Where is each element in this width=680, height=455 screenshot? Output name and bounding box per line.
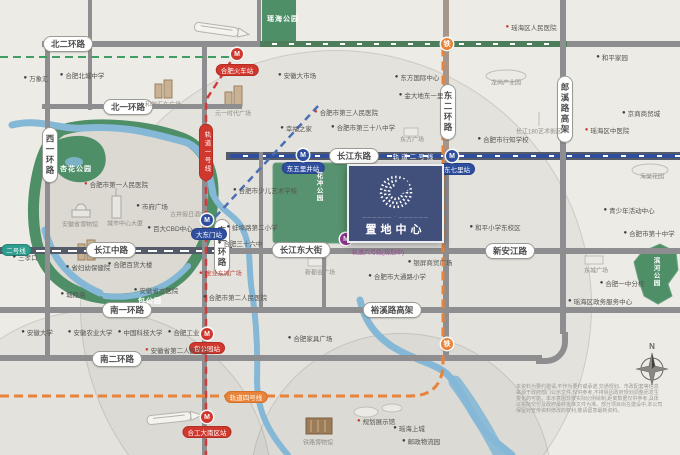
poi-label: ●规划展示馆 [357, 416, 395, 426]
poi-dot-icon: ● [226, 224, 230, 230]
poi-dot-icon: ● [233, 187, 237, 193]
poi-text: 包公园 [138, 296, 162, 306]
poi-text: 规划展示馆 [363, 416, 396, 426]
poi-text: 京商商贸城 [628, 108, 661, 118]
poi-dot-icon: ● [623, 230, 627, 236]
poi-text: 铁路博物馆 [303, 438, 333, 447]
poi-text: 合肥市少儿艺术学校 [239, 185, 298, 195]
poi-dot-icon: ● [108, 261, 112, 267]
poi-text: 杏花公园 [60, 164, 92, 174]
metro-station-icon[interactable]: M [446, 150, 458, 162]
poi-label: ●瑶海区中医院 [585, 125, 630, 135]
road-label: 新安江路 [485, 243, 535, 259]
poi-label: 安徽省博物馆 [62, 220, 98, 229]
poi-label: 海棠花园 [640, 172, 664, 181]
poi-label: ●合肥市第二人民医院 [203, 292, 267, 302]
poi-dot-icon: ● [147, 225, 151, 231]
poi-dot-icon: ● [600, 280, 604, 286]
poi-dot-icon: ● [12, 254, 16, 260]
poi-label: 新都会广场 [305, 268, 335, 277]
poi-text: 合肥一中分校 [605, 278, 644, 288]
compass-north-label: N [634, 342, 670, 351]
poi-text: 三孝口 [18, 252, 38, 262]
poi-text: 蚌埠路第二小学 [232, 222, 278, 232]
poi-text: 东方广场 [400, 135, 424, 144]
metro-station-icon[interactable]: M [201, 411, 213, 423]
metro-line-label: 轨道六号线(规划中) [352, 248, 404, 257]
poi-label: ●安徽省立医院 [134, 285, 179, 295]
poi-text: 合肥家具广场 [293, 333, 332, 343]
poi-text: 合肥市第十中学 [629, 228, 675, 238]
poi-label: 铁路博物馆 [303, 438, 333, 447]
poi-text: 城市中心大厦 [107, 219, 143, 228]
poi-dot-icon: ● [168, 329, 172, 335]
poi-dot-icon: ● [393, 425, 397, 431]
poi-dot-icon: ● [60, 291, 64, 297]
poi-text: 和平小学东校区 [475, 222, 521, 232]
poi-label: 东方广场 [400, 135, 424, 144]
poi-label: ●和平小学东校区 [469, 222, 520, 232]
poi-dot-icon: ● [118, 329, 122, 335]
railway-station-icon[interactable]: 铁 [441, 38, 453, 50]
poi-label: ●银屏商贸广场 [408, 257, 453, 267]
poi-text: 和地汇东广场 [145, 100, 181, 109]
poi-text: 安徽省博物馆 [62, 220, 98, 229]
poi-label: 东城广场 [584, 266, 608, 275]
compass-rose-icon [634, 351, 670, 387]
poi-text: 安徽大市场 [284, 70, 317, 80]
poi-text: 合肥市第三人民医院 [320, 107, 379, 117]
poi-label: ●合肥市第十中学 [623, 228, 674, 238]
road-label: 北二环路 [43, 36, 93, 52]
poi-dot-icon: ● [622, 110, 626, 116]
poi-text: 瑶海区政务服务中心 [574, 296, 633, 306]
poi-label: ★宝业东城广场 [198, 269, 241, 278]
metro-station-icon[interactable]: M [231, 48, 243, 60]
poi-label: ●合肥市第一人民医院 [84, 179, 148, 189]
poi-label: ●合肥市大通路小学 [368, 271, 426, 281]
poi-text: 合肥市大通路小学 [374, 271, 426, 281]
project-name: 置地中心 [366, 221, 426, 237]
poi-text: 省妇幼保健院 [71, 262, 110, 272]
poi-label: 滨河公园 [650, 257, 660, 287]
metro-station-icon[interactable]: M [201, 328, 213, 340]
poi-label: 包公园 [138, 296, 162, 306]
project-block[interactable]: —————— · —————— 置地中心 [347, 164, 444, 243]
poi-dot-icon: ● [23, 75, 27, 81]
poi-label: 城市中心大厦 [107, 219, 143, 228]
poi-dot-icon: ● [280, 125, 284, 131]
station-name-label: 合肥火车站 [216, 64, 259, 76]
poi-label: ●京商商贸城 [622, 108, 660, 118]
poi-label: ●三孝口 [12, 252, 37, 262]
poi-text: 安徽省第二人民医院 [151, 345, 210, 355]
poi-dot-icon: ● [395, 74, 399, 80]
poi-dot-icon: ● [314, 109, 318, 115]
poi-text: 青少年活动中心 [609, 205, 655, 215]
road-label: 裕溪路高架 [363, 302, 422, 318]
poi-text: 瑶海上城 [399, 423, 425, 433]
poi-label: ●邮政物流园 [402, 436, 440, 446]
poi-text: 合肥百货大楼 [113, 259, 152, 269]
poi-label: 花冲公园 [313, 172, 323, 202]
poi-text: 龙岗产业园 [491, 78, 521, 87]
poi-text: 万象汇 [29, 73, 49, 83]
poi-text: 瑶海公园 [267, 14, 299, 24]
poi-label: 龙岗产业园 [491, 78, 521, 87]
metro-station-icon[interactable]: M [297, 149, 309, 161]
poi-text: 市府广场 [142, 201, 168, 211]
poi-dot-icon: ● [603, 207, 607, 213]
poi-label: ●东方国际中心 [395, 72, 440, 82]
poi-dot-icon: ● [21, 329, 25, 335]
railway-station-icon[interactable]: 铁 [441, 338, 453, 350]
poi-label: 瑶海公园 [267, 14, 299, 24]
poi-label: ●安徽农业大学 [68, 327, 113, 337]
poi-text: 合肥市第三十八中学 [337, 122, 396, 132]
poi-dot-icon: ● [585, 127, 589, 133]
poi-dot-icon: ● [568, 298, 572, 304]
poi-label: ●合肥百货大楼 [108, 259, 153, 269]
poi-dot-icon: ● [596, 54, 600, 60]
poi-label: ●瑶海上城 [393, 423, 425, 433]
poi-text: 海棠花园 [640, 172, 664, 181]
poi-label: ●蚌埠路第二小学 [226, 222, 277, 232]
poi-label: ●城隍庙 [60, 289, 85, 299]
poi-label: ●万象汇 [23, 73, 48, 83]
poi-text: 邮政物流园 [408, 436, 441, 446]
poi-text: 金大地东一里 [404, 90, 443, 100]
poi-label: ●合肥家具广场 [288, 333, 333, 343]
poi-label: ●青少年活动中心 [603, 205, 654, 215]
poi-dot-icon: ● [357, 418, 361, 424]
poi-text: 合肥市行知学校 [483, 134, 529, 144]
poi-label: ●合肥市第三人民医院 [314, 107, 378, 117]
poi-text: 中国科技大学 [123, 327, 162, 337]
poi-text: 东城广场 [584, 266, 608, 275]
poi-label: ●安徽大市场 [278, 70, 316, 80]
poi-label: ●中国科技大学 [118, 327, 163, 337]
metro-station-icon[interactable]: M [201, 214, 213, 226]
poi-label: ●合肥市行知学校 [477, 134, 528, 144]
road-label: 长江东大街 [272, 242, 331, 258]
poi-dot-icon: ● [368, 273, 372, 279]
poi-label: ●安徽大学 [21, 327, 53, 337]
disclaimer-line: 保留对宣传资料修改的权利,敬请留意最新资料。 [516, 408, 674, 414]
road-label: 西一环路 [42, 127, 58, 183]
poi-text: 合肥市第一人民医院 [90, 179, 149, 189]
poi-dot-icon: ● [402, 438, 406, 444]
poi-label: ●金大地东一里 [399, 90, 444, 100]
poi-text: 花冲公园 [313, 172, 323, 202]
poi-label: ●瑶海区人民医院 [505, 22, 556, 32]
poi-label: ●和平家园 [596, 52, 628, 62]
poi-label: ●合肥一中分校 [600, 278, 645, 288]
poi-text: 和平家园 [602, 52, 628, 62]
poi-text: 安徽农业大学 [73, 327, 112, 337]
metro-line-label: 轨道四号线 [225, 391, 268, 403]
poi-dot-icon: ● [60, 72, 64, 78]
poi-label: ●合肥市少儿艺术学校 [233, 185, 297, 195]
poi-dot-icon: ● [505, 24, 509, 30]
poi-text: 合肥市第二人民医院 [209, 292, 268, 302]
poi-dot-icon: ● [408, 259, 412, 265]
poi-label: 元一时代广场 [215, 109, 251, 118]
poi-text: 城隍庙 [66, 289, 86, 299]
poi-label: ●合肥北城中学 [60, 70, 105, 80]
project-spiral-logo [375, 171, 417, 213]
poi-label: 和地汇东广场 [145, 100, 181, 109]
poi-dot-icon: ● [134, 287, 138, 293]
poi-dot-icon: ● [203, 294, 207, 300]
poi-text: 元一时代广场 [215, 109, 251, 118]
poi-text: 合肥北城中学 [65, 70, 104, 80]
poi-text: 宝业东城广场 [206, 269, 242, 278]
station-name-label: 东七里站 [439, 163, 475, 175]
poi-dot-icon: ● [84, 181, 88, 187]
poi-label: ●合肥三十六中 [218, 238, 263, 248]
poi-dot-icon: ● [477, 136, 481, 142]
poi-label: ●省妇幼保健院 [66, 262, 111, 272]
poi-text: 瑶海区人民医院 [511, 22, 557, 32]
poi-text: 长江180艺术街区 [516, 127, 562, 136]
poi-dot-icon: ● [399, 92, 403, 98]
poi-text: 瑶海区中医院 [590, 125, 629, 135]
metro-line-label: 轨道一号线 [199, 124, 213, 181]
poi-dot-icon: ● [136, 203, 140, 209]
poi-dot-icon: ● [278, 72, 282, 78]
poi-text: 新都会广场 [305, 268, 335, 277]
poi-star-icon: ★ [198, 270, 203, 276]
poi-label: ●瑶海区政务服务中心 [568, 296, 632, 306]
road-label: 长江东路 [329, 148, 379, 164]
poi-dot-icon: ● [218, 240, 222, 246]
poi-dot-icon: ● [469, 224, 473, 230]
metro-line-label: 轨道二号线 [393, 151, 436, 161]
station-name-label: 合工大南区站 [183, 426, 232, 438]
poi-dot-icon: ● [288, 335, 292, 341]
road-label: 南二环路 [92, 351, 142, 367]
poi-text: 东方国际中心 [400, 72, 439, 82]
poi-text: 安徽大学 [27, 327, 53, 337]
poi-label: 杏花公园 [60, 164, 92, 174]
project-tagline: —————— · —————— [362, 214, 429, 219]
poi-dot-icon: ● [66, 264, 70, 270]
poi-text: 合肥三十六中 [223, 238, 262, 248]
poi-dot-icon: ● [145, 347, 149, 353]
poi-dot-icon: ● [68, 329, 72, 335]
poi-dot-icon: ● [331, 124, 335, 130]
poi-label: ●安徽省第二人民医院 [145, 345, 209, 355]
poi-label: ●市府广场 [136, 201, 168, 211]
poi-label: ●合肥市第三十八中学 [331, 122, 395, 132]
compass: N [634, 342, 670, 389]
poi-text: 银屏商贸广场 [413, 257, 452, 267]
location-map-canvas: —————— · —————— 置地中心 本资料为要约邀请,不作为要约或承诺,交… [0, 0, 680, 455]
poi-label: 长江180艺术街区 [516, 127, 562, 136]
road-label: 长江中路 [86, 242, 136, 258]
poi-text: 百大CBD中心 [153, 223, 193, 233]
poi-text: 幸福之家 [286, 123, 312, 133]
poi-text: 滨河公园 [650, 257, 660, 287]
poi-text: 安徽省立医院 [139, 285, 178, 295]
poi-label: ●百大CBD中心 [147, 223, 192, 233]
poi-label: ●幸福之家 [280, 123, 312, 133]
